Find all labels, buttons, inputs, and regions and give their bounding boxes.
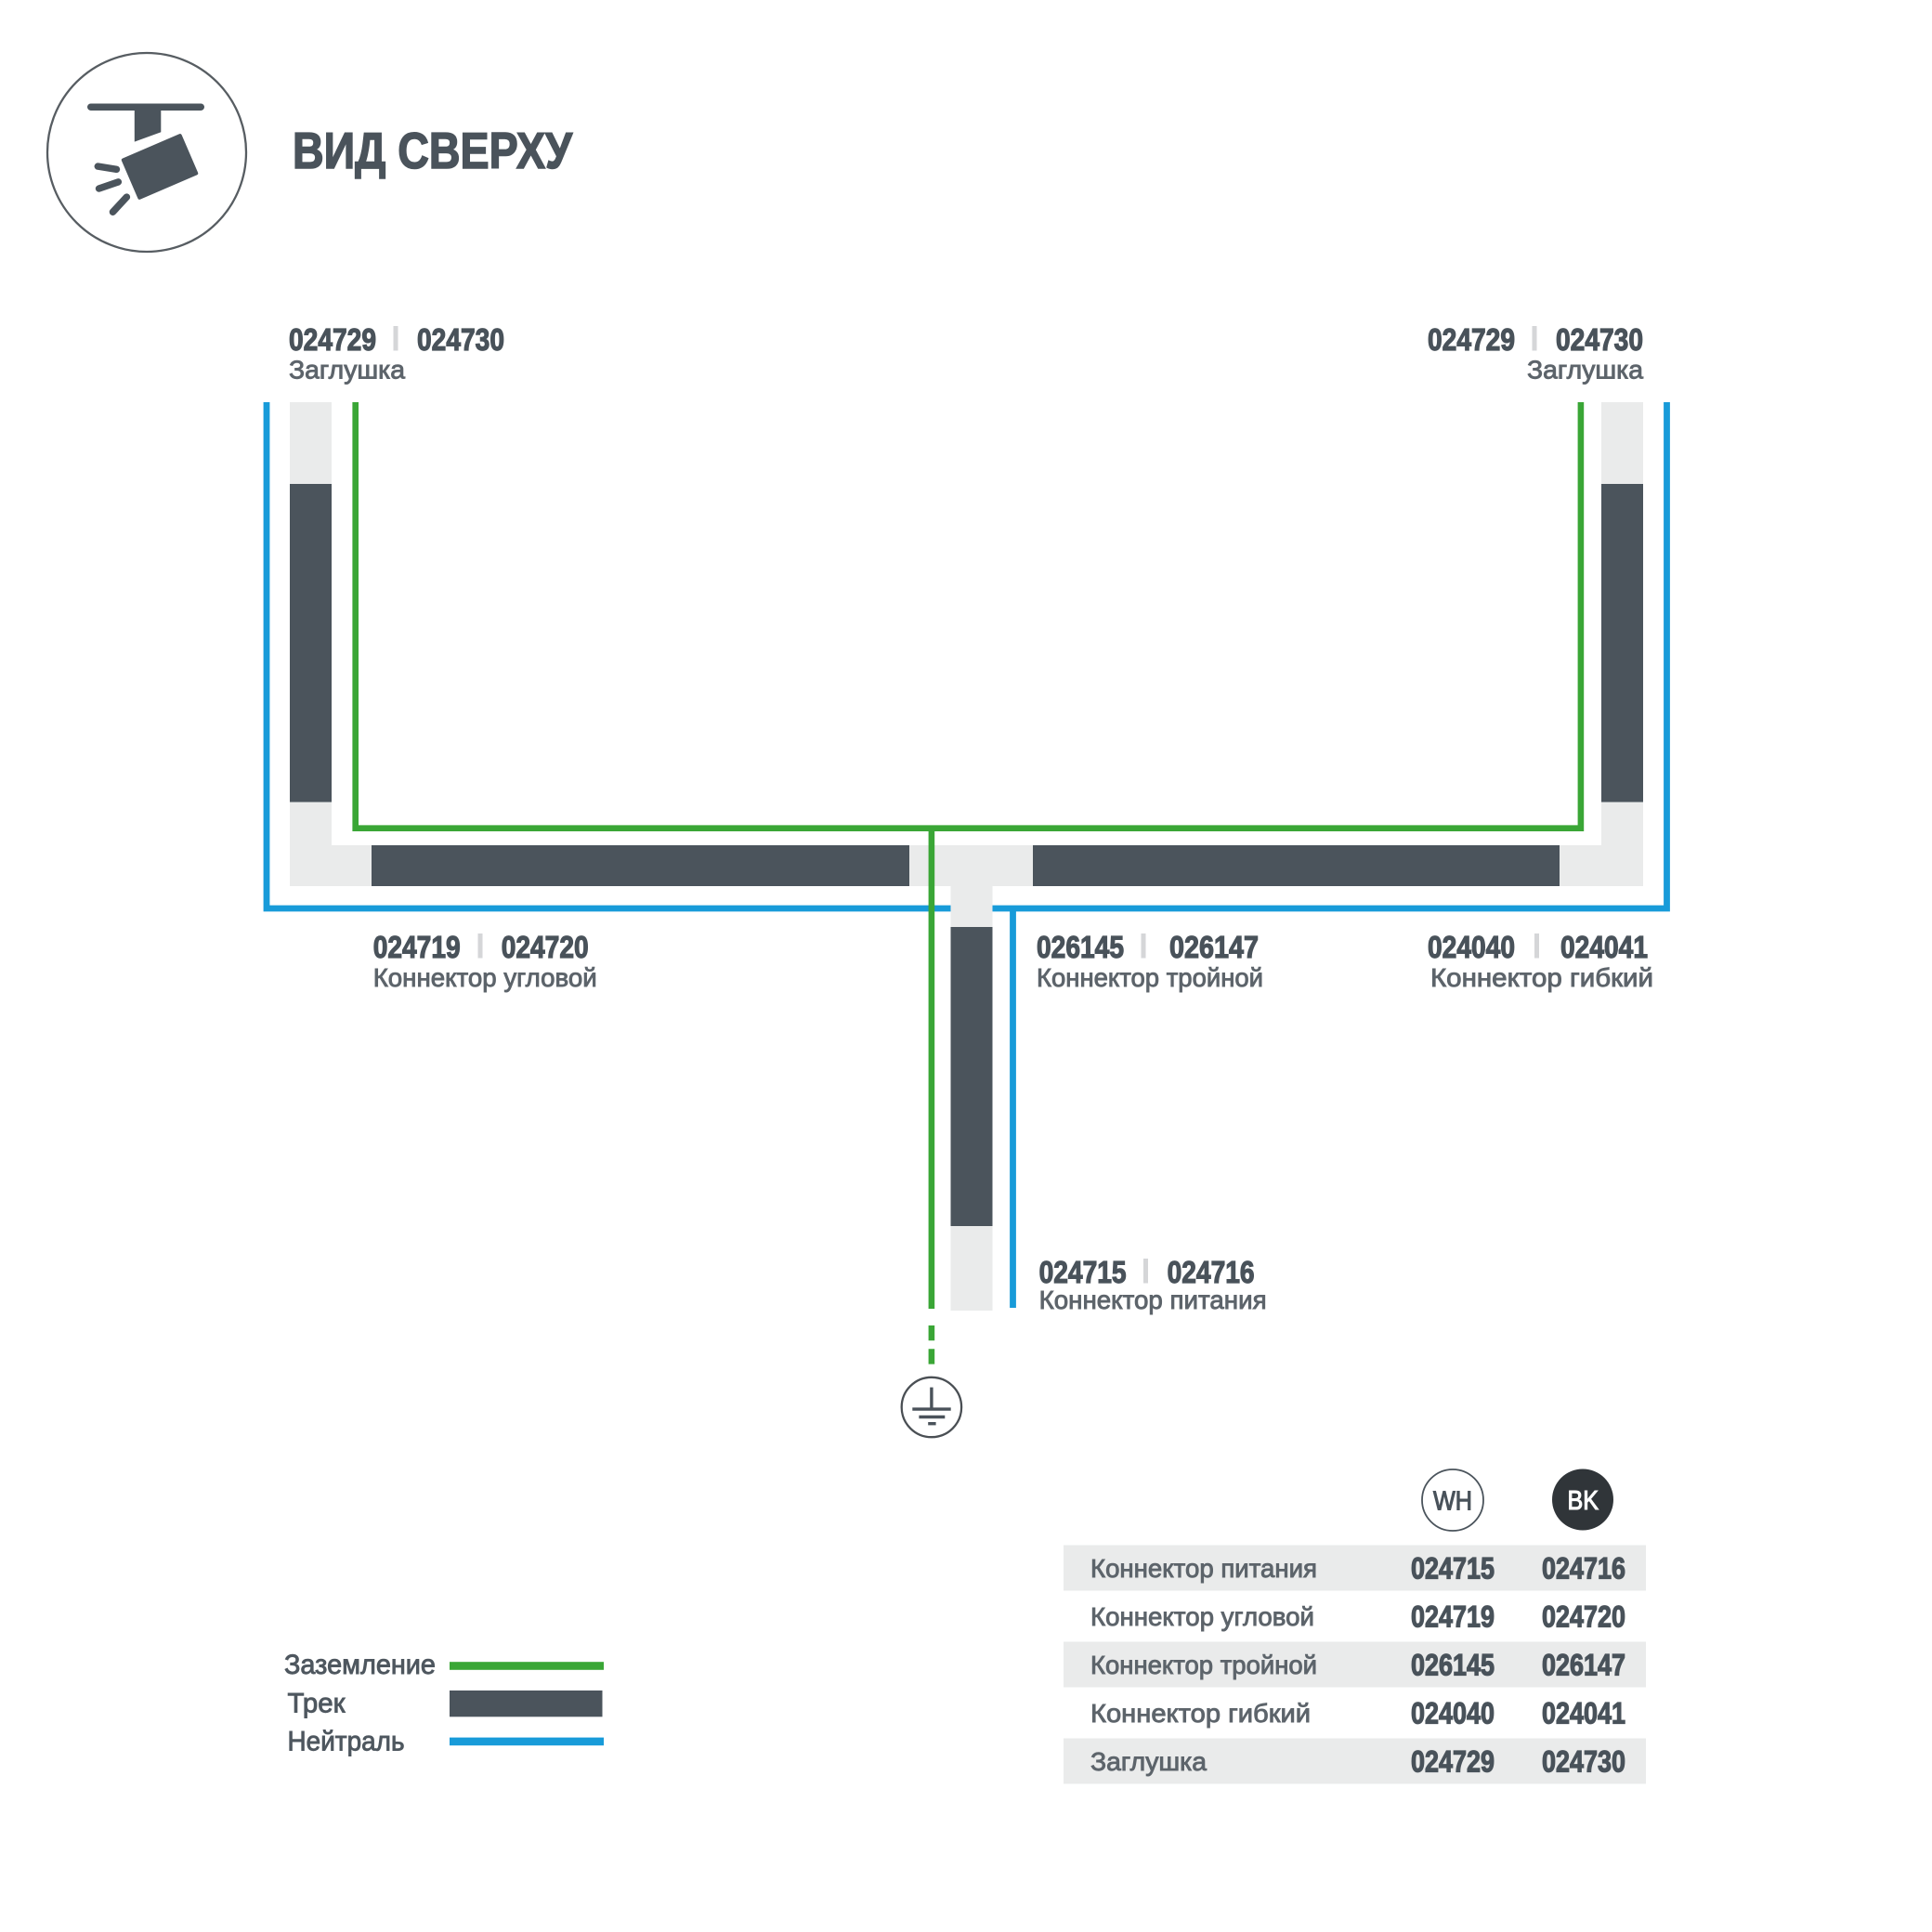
- svg-text:024729: 024729: [289, 322, 376, 357]
- svg-text:WH: WH: [1433, 1487, 1472, 1517]
- svg-text:024719: 024719: [1411, 1600, 1495, 1634]
- svg-text:024719: 024719: [373, 930, 461, 964]
- svg-text:Коннектор тройной: Коннектор тройной: [1090, 1651, 1317, 1679]
- svg-text:Трек: Трек: [288, 1689, 346, 1719]
- svg-text:024730: 024730: [1556, 322, 1643, 357]
- svg-text:Коннектор угловой: Коннектор угловой: [1090, 1602, 1314, 1631]
- svg-text:024720: 024720: [1542, 1600, 1625, 1634]
- svg-text:026147: 026147: [1542, 1649, 1625, 1682]
- svg-text:BK: BK: [1568, 1486, 1599, 1516]
- svg-text:024041: 024041: [1560, 930, 1648, 964]
- svg-text:024715: 024715: [1411, 1552, 1495, 1586]
- svg-text:024730: 024730: [1542, 1745, 1625, 1779]
- svg-text:Коннектор питания: Коннектор питания: [1090, 1554, 1317, 1583]
- svg-text:024716: 024716: [1168, 1255, 1255, 1289]
- svg-text:Коннектор питания: Коннектор питания: [1039, 1286, 1267, 1314]
- svg-text:024715: 024715: [1039, 1255, 1127, 1289]
- svg-text:024730: 024730: [417, 322, 504, 357]
- svg-text:Коннектор угловой: Коннектор угловой: [373, 963, 597, 992]
- svg-text:026145: 026145: [1411, 1649, 1495, 1682]
- svg-text:Заземление: Заземление: [284, 1650, 436, 1680]
- svg-text:Заглушка: Заглушка: [1527, 356, 1643, 385]
- svg-text:024729: 024729: [1428, 322, 1515, 357]
- svg-text:024040: 024040: [1428, 930, 1515, 964]
- svg-text:024040: 024040: [1411, 1697, 1495, 1730]
- svg-text:024041: 024041: [1542, 1697, 1625, 1730]
- svg-text:024729: 024729: [1411, 1745, 1495, 1779]
- svg-text:Нейтраль: Нейтраль: [288, 1727, 405, 1757]
- svg-text:Коннектор гибкий: Коннектор гибкий: [1430, 963, 1653, 992]
- svg-text:024720: 024720: [502, 930, 589, 964]
- svg-text:026145: 026145: [1037, 930, 1124, 964]
- svg-text:ВИД СВЕРХУ: ВИД СВЕРХУ: [293, 122, 573, 179]
- svg-text:Коннектор тройной: Коннектор тройной: [1037, 963, 1263, 992]
- svg-text:024716: 024716: [1542, 1552, 1625, 1586]
- svg-text:026147: 026147: [1169, 930, 1259, 964]
- svg-text:Заглушка: Заглушка: [289, 356, 405, 385]
- svg-text:Заглушка: Заглушка: [1090, 1747, 1207, 1776]
- svg-text:Коннектор гибкий: Коннектор гибкий: [1090, 1699, 1311, 1728]
